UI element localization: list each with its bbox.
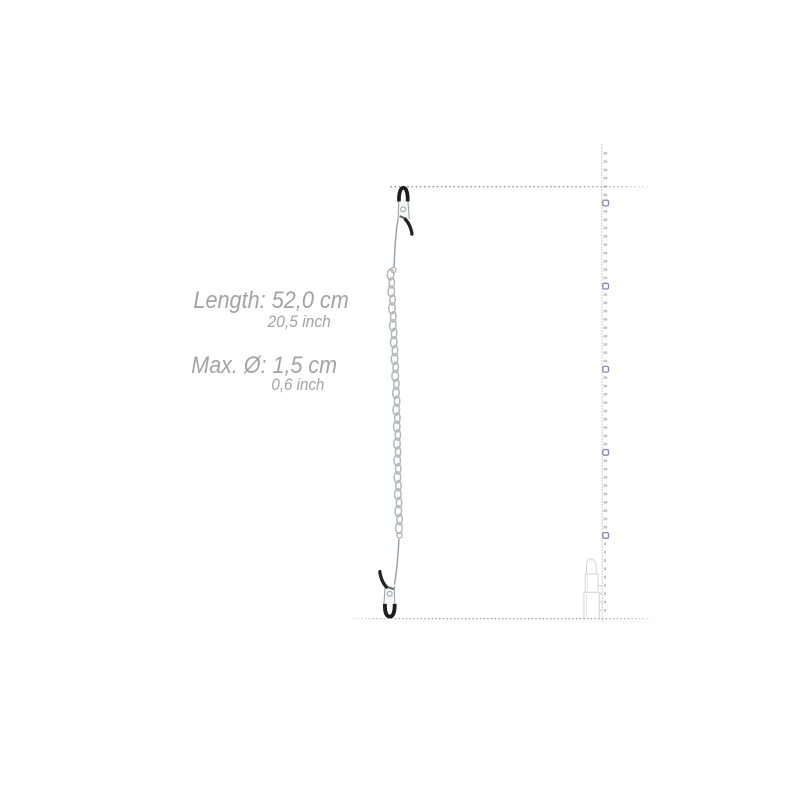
svg-text:Length: 52,0 cm: Length: 52,0 cm — [193, 288, 348, 314]
svg-text:0,6 inch: 0,6 inch — [271, 375, 324, 394]
svg-text:20,5 inch: 20,5 inch — [267, 312, 331, 331]
